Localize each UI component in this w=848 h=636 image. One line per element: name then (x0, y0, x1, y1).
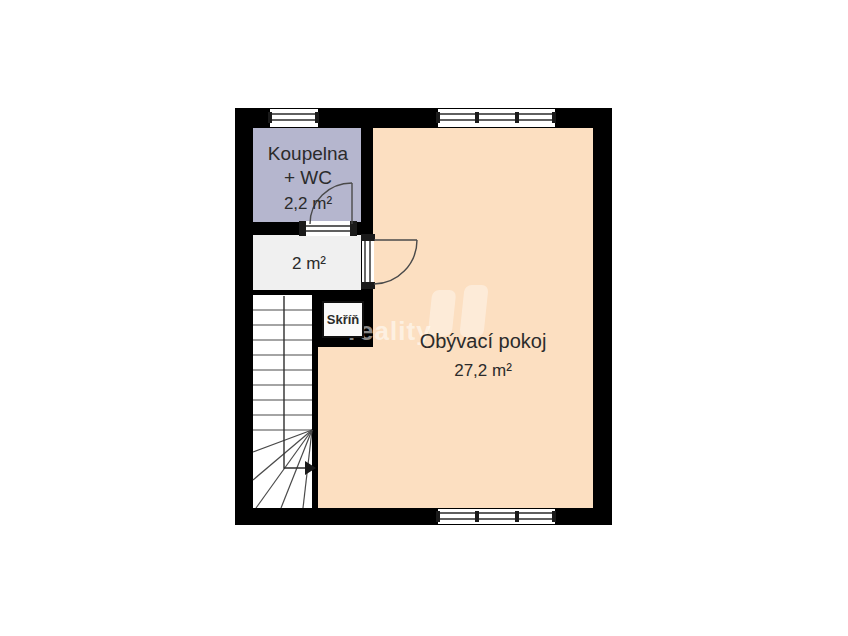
closet-box: Skříň (322, 301, 364, 338)
door-post (299, 221, 306, 236)
floorplan-canvas: reality Skříň Koupelna + WC 2,2 m² 2 m² … (0, 0, 848, 636)
window-bottom (436, 509, 556, 524)
door-post (361, 282, 375, 289)
living-room-door (361, 234, 417, 289)
living-door-arc (374, 240, 417, 284)
floorplan-drawing (0, 0, 848, 636)
closet-label: Skříň (327, 312, 360, 327)
wall-left (235, 108, 253, 525)
hall-area: 2 m² (253, 254, 365, 274)
window-top-left (268, 109, 319, 127)
staircase (253, 295, 316, 508)
door-post (361, 234, 375, 241)
wall-hall-stairs (253, 290, 312, 295)
window-top-right (436, 109, 556, 127)
bathroom-label: Koupelna + WC 2,2 m² (253, 142, 363, 216)
living-room-name: Obývací pokoj (373, 330, 593, 353)
living-room-label: Obývací pokoj 27,2 m² (373, 330, 593, 381)
bathroom-name-line1: Koupelna (253, 142, 363, 166)
wall-stairs-living (312, 347, 318, 508)
living-room-area: 27,2 m² (373, 361, 593, 381)
wall-right (593, 108, 612, 525)
door-post (350, 221, 357, 236)
hall-label: 2 m² (253, 254, 365, 274)
bathroom-name-line2: + WC (253, 166, 363, 190)
bathroom-area: 2,2 m² (253, 192, 363, 216)
